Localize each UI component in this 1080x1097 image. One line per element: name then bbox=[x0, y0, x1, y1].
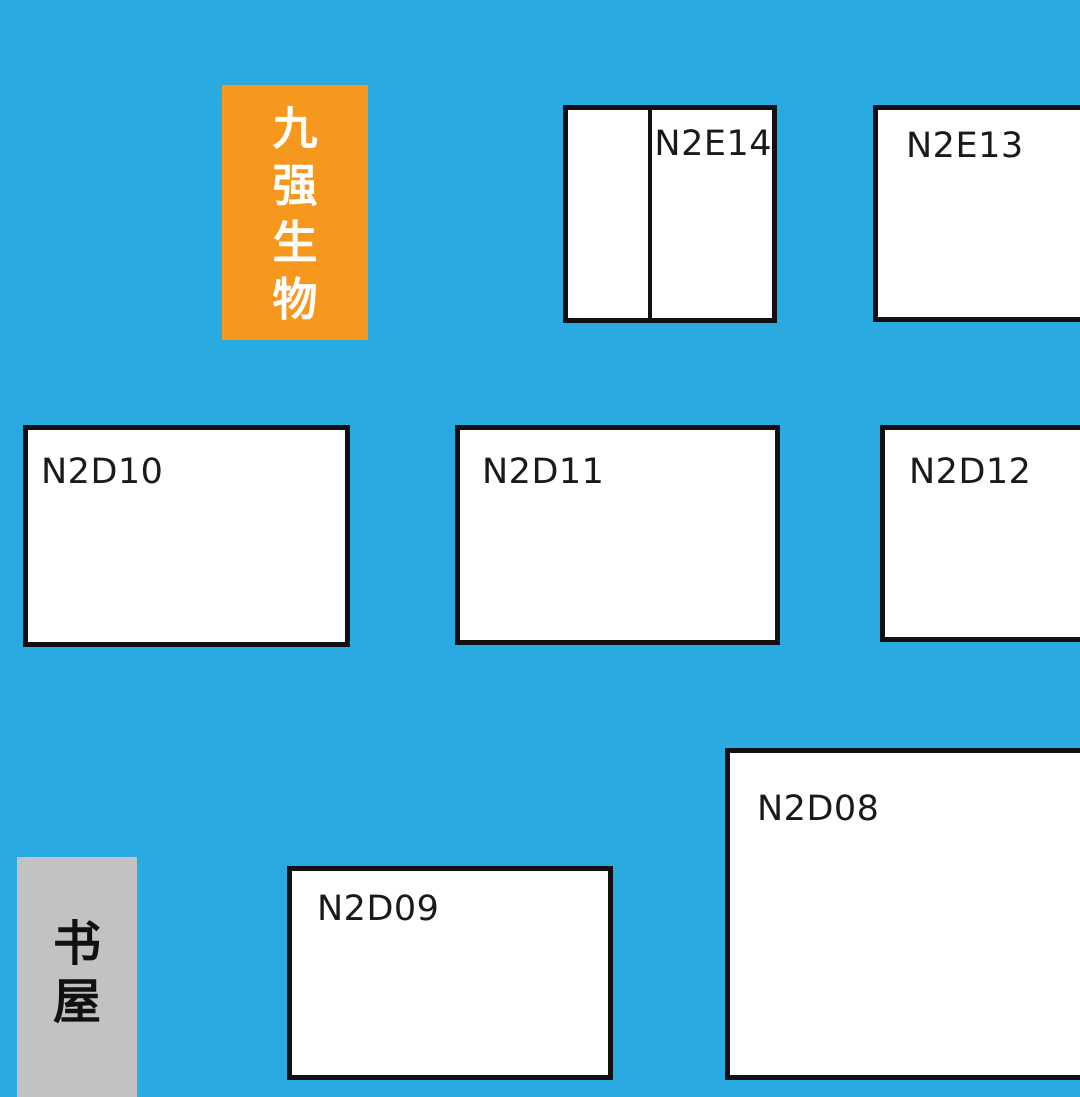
booth-label-n2e13: N2E13 bbox=[906, 126, 1080, 166]
booth-n2e14-label-cell: N2E14 bbox=[652, 110, 772, 318]
booth-label-n2d09: N2D09 bbox=[317, 889, 608, 929]
booth-n2d08: N2D08 bbox=[725, 748, 1080, 1080]
booth-label-n2d10: N2D10 bbox=[41, 452, 345, 492]
booth-n2e14-empty-cell bbox=[568, 110, 652, 318]
book-house-block: 书屋 bbox=[17, 857, 137, 1097]
booth-n2d10: N2D10 bbox=[23, 425, 350, 647]
brand-banner-text: 九强生物 bbox=[270, 100, 320, 340]
booth-label-n2d08: N2D08 bbox=[757, 789, 1080, 829]
booth-label-n2d11: N2D11 bbox=[482, 452, 775, 492]
book-house-text: 书屋 bbox=[51, 915, 104, 1097]
booth-n2d09: N2D09 bbox=[287, 866, 613, 1080]
booth-label-n2d12: N2D12 bbox=[909, 452, 1080, 492]
brand-banner: 九强生物 bbox=[222, 85, 368, 340]
booth-n2e14: N2E14 bbox=[563, 105, 777, 323]
booth-n2d11: N2D11 bbox=[455, 425, 780, 645]
booth-n2e13: N2E13 bbox=[873, 105, 1080, 322]
booth-label-n2e14: N2E14 bbox=[654, 124, 772, 164]
booth-n2d12: N2D12 bbox=[880, 425, 1080, 642]
